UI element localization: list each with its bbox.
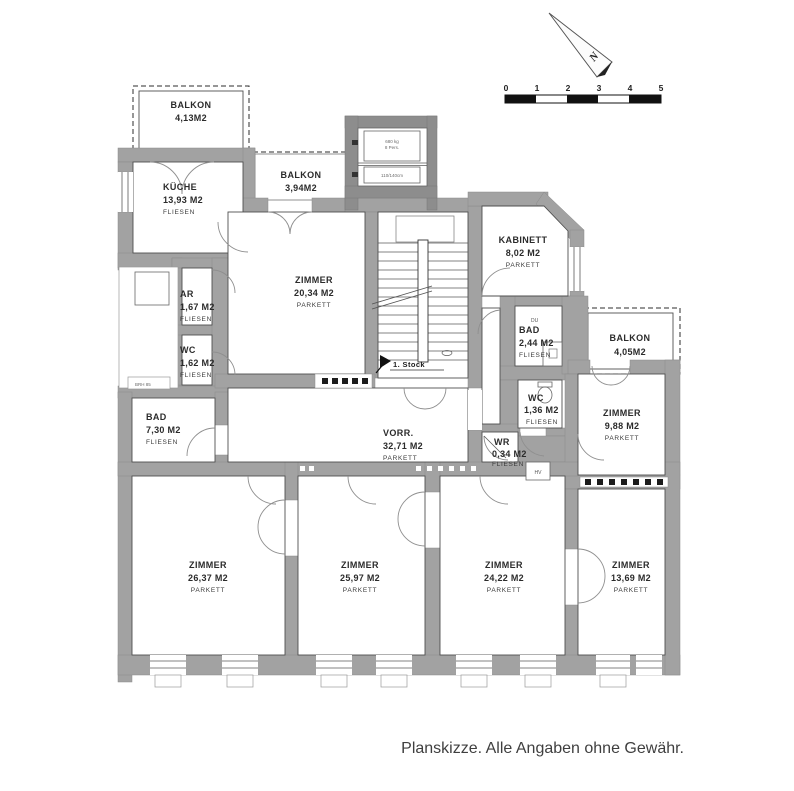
hall-opening [468, 390, 482, 430]
room-name: ZIMMER [295, 275, 333, 285]
room-floor: FLIESEN [526, 419, 558, 426]
wall [570, 230, 584, 247]
wall [665, 462, 680, 675]
elevator-door-mark [352, 172, 358, 177]
room-area: 4,05M2 [614, 347, 646, 357]
scale-bar-segment [505, 95, 536, 103]
room-floor: PARKETT [191, 587, 225, 594]
wall [118, 162, 133, 172]
room-area: 20,34 M2 [294, 288, 334, 298]
wall [365, 212, 378, 378]
elevator-persons: 8 Pers. [385, 145, 399, 150]
shower-label: DU [531, 318, 539, 324]
railing-dots-zimmer-2034 [315, 374, 372, 388]
window [150, 655, 186, 675]
wall [243, 198, 268, 212]
room-floor: FLIESEN [146, 439, 178, 446]
wall [425, 548, 440, 658]
label-kabinett: KABINETT 8,02 M2 PARKETT [499, 235, 548, 269]
window-sills [155, 675, 626, 687]
wall [118, 392, 132, 682]
wall [345, 198, 482, 212]
room-name: VORR. [383, 428, 414, 438]
wall [568, 360, 590, 374]
wall [285, 556, 298, 658]
room-area: 32,71 M2 [383, 441, 423, 451]
scale-bar: 0 1 2 3 4 5 [504, 83, 664, 103]
wall [118, 148, 255, 162]
wall [500, 366, 570, 380]
wall [500, 296, 515, 368]
room-name: WC [528, 393, 544, 403]
scale-bar-segment [629, 95, 661, 103]
wall [215, 392, 228, 425]
scale-tick-4: 4 [628, 83, 633, 93]
wall [312, 198, 345, 212]
floor-plan-page: N 0 1 2 3 4 5 [0, 0, 794, 791]
room-floor: PARKETT [614, 587, 648, 594]
elevator-capacity: 680 kg [385, 139, 399, 144]
lightwell-shaft [135, 272, 169, 305]
room-floor: FLIESEN [180, 372, 212, 379]
label-zimmer-2637: ZIMMER 26,37 M2 PARKETT [188, 560, 228, 594]
room-name: WC [180, 345, 196, 355]
elevator-wall [345, 116, 437, 128]
wall [212, 258, 228, 393]
room-area: 4,13M2 [175, 113, 207, 123]
room-floor: PARKETT [383, 455, 417, 462]
scale-tick-1: 1 [535, 83, 540, 93]
room-name: BALKON [610, 333, 651, 343]
wall [500, 380, 518, 428]
label-zimmer-2597: ZIMMER 25,97 M2 PARKETT [340, 560, 380, 594]
floor-marker-label: 1. Stock [393, 360, 425, 369]
window [316, 655, 352, 675]
room-area: 13,93 M2 [163, 195, 203, 205]
window [222, 655, 258, 675]
label-zimmer-2034: ZIMMER 20,34 M2 PARKETT [294, 275, 334, 309]
north-compass: N [549, 13, 612, 77]
wall [565, 374, 578, 475]
window [376, 655, 412, 675]
room-area: 1,62 M2 [180, 358, 215, 368]
room-name: ZIMMER [189, 560, 227, 570]
room-name: WR [494, 437, 510, 447]
wall [468, 206, 482, 388]
wall [482, 424, 518, 432]
room-area: 8,02 M2 [506, 248, 541, 258]
plan-caption: Planskizze. Alle Angaben ohne Gewähr. [401, 740, 684, 757]
scale-tick-5: 5 [659, 83, 664, 93]
sill-label: BRH 85 [135, 382, 151, 387]
room-area: 9,88 M2 [605, 421, 640, 431]
room-floor: PARKETT [506, 262, 540, 269]
room-name: BAD [519, 325, 540, 335]
room-area: 25,97 M2 [340, 573, 380, 583]
wall [565, 489, 578, 549]
room-area: 26,37 M2 [188, 573, 228, 583]
label-zimmer-988: ZIMMER 9,88 M2 PARKETT [603, 408, 641, 442]
floor-plan-drawing: N 0 1 2 3 4 5 [0, 0, 794, 791]
room-zimmer-1369 [578, 489, 665, 655]
corridor [482, 308, 500, 424]
stair-stringer [418, 240, 428, 362]
room-name: ZIMMER [603, 408, 641, 418]
room-floor: FLIESEN [180, 316, 212, 323]
room-floor: PARKETT [605, 435, 639, 442]
room-area: 3,94M2 [285, 183, 317, 193]
room-name: BALKON [171, 100, 212, 110]
window [520, 655, 556, 675]
label-zimmer-2422: ZIMMER 24,22 M2 PARKETT [484, 560, 524, 594]
room-name: ZIMMER [485, 560, 523, 570]
room-area: 13,69 M2 [611, 573, 651, 583]
room-name: AR [180, 289, 194, 299]
window [636, 655, 662, 675]
railing-dots-zimmer-988 [580, 477, 668, 487]
room-floor: PARKETT [343, 587, 377, 594]
scale-tick-2: 2 [566, 83, 571, 93]
window [456, 655, 492, 675]
room-area: 7,30 M2 [146, 425, 181, 435]
room-name: ZIMMER [341, 560, 379, 570]
room-name: KÜCHE [163, 182, 197, 192]
room-name: ZIMMER [612, 560, 650, 570]
compass-needle [549, 13, 612, 77]
room-area: 1,67 M2 [180, 302, 215, 312]
wall [565, 605, 578, 658]
window [570, 247, 584, 291]
room-vorr [228, 388, 468, 462]
room-floor: FLIESEN [519, 352, 551, 359]
elevator-size: 110/140cm [381, 173, 403, 178]
room-name: BALKON [281, 170, 322, 180]
room-name: BAD [146, 412, 167, 422]
room-floor: FLIESEN [163, 209, 195, 216]
window [596, 655, 630, 675]
room-area: 24,22 M2 [484, 573, 524, 583]
elevator-door-mark [352, 140, 358, 145]
room-floor: FLIESEN [492, 461, 524, 468]
scale-bar-segment [567, 95, 598, 103]
scale-tick-0: 0 [504, 83, 509, 93]
room-floor: PARKETT [487, 587, 521, 594]
room-area: 2,44 M2 [519, 338, 554, 348]
room-area: 1,36 M2 [524, 405, 559, 415]
room-floor: PARKETT [297, 302, 331, 309]
hv-label: HV [535, 470, 543, 476]
window [118, 172, 133, 212]
wall [285, 462, 298, 500]
scale-tick-3: 3 [597, 83, 602, 93]
label-zimmer-1369: ZIMMER 13,69 M2 PARKETT [611, 560, 651, 594]
elevator-wall [345, 186, 437, 198]
room-area: 0,34 M2 [492, 449, 527, 459]
room-name: KABINETT [499, 235, 548, 245]
wall [665, 360, 680, 475]
toilet-tank [538, 382, 552, 387]
